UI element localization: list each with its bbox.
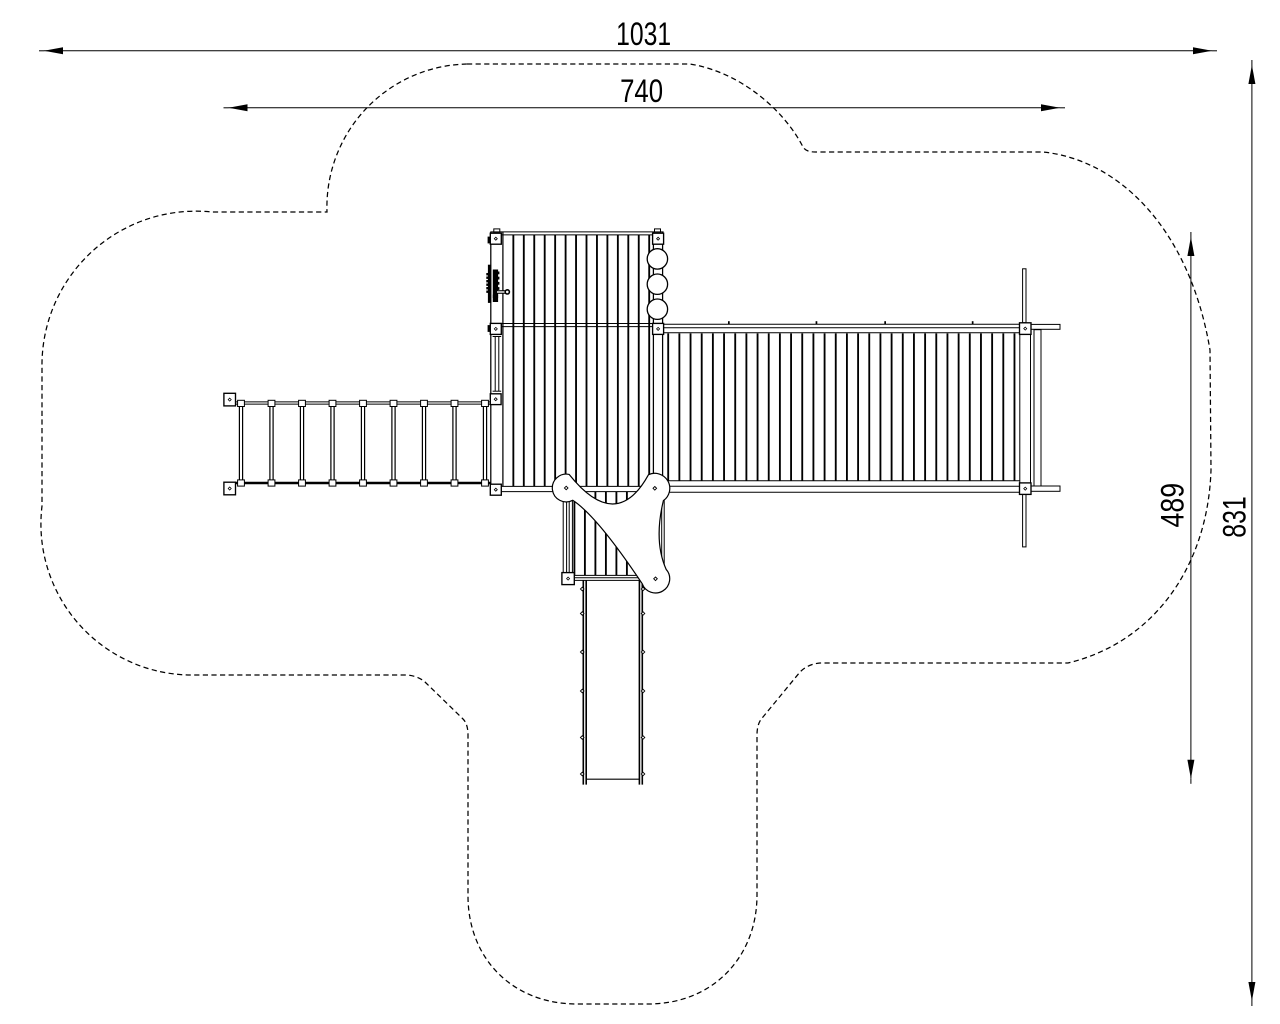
svg-text:489: 489 [1155, 483, 1191, 528]
svg-text:740: 740 [620, 73, 663, 109]
svg-text:831: 831 [1216, 496, 1252, 538]
svg-text:1031: 1031 [616, 16, 671, 52]
